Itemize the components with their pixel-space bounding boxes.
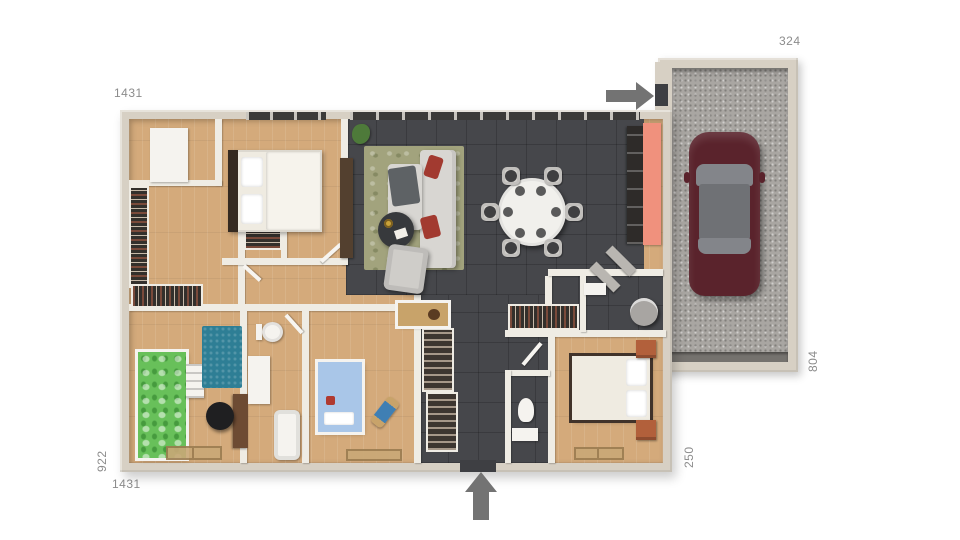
arrow-right-head: [636, 82, 654, 110]
arrow-up-icon: [465, 472, 497, 492]
kid-bed-green: [138, 352, 186, 458]
closet-rack: [131, 188, 147, 286]
floorplan-canvas: 1431 324 922 1431 250 804: [0, 0, 960, 540]
water-heater: [630, 298, 658, 326]
place-setting: [536, 186, 546, 196]
pillow: [241, 194, 263, 224]
dimension-garage-depth: 804: [806, 350, 820, 372]
wall: [505, 370, 550, 376]
pillow: [626, 390, 647, 417]
living-room-windows: [350, 112, 640, 120]
storage-cabinet: [150, 128, 188, 182]
floor-mat: [346, 449, 402, 461]
bedroom2-bed: [572, 356, 650, 420]
pillow: [324, 412, 354, 425]
sofa-blanket: [387, 165, 420, 207]
kid-bed-blue: [318, 362, 362, 432]
toilet: [262, 322, 283, 342]
wall: [505, 370, 511, 463]
dining-chair: [544, 239, 562, 257]
dining-chair: [565, 203, 583, 221]
place-setting: [503, 207, 513, 217]
car-roof: [699, 184, 750, 240]
floor-mat: [574, 447, 624, 460]
garage-door: [668, 352, 788, 362]
armchair: [383, 243, 429, 294]
arrow-right-icon: [606, 90, 636, 102]
dining-chair: [502, 239, 520, 257]
car-mirror-right: [759, 172, 765, 183]
dining-chair: [481, 203, 499, 221]
kitchen-accent-wall: [643, 123, 661, 245]
place-setting: [515, 228, 525, 238]
dining-chair: [544, 167, 562, 185]
wc-shelf: [512, 428, 538, 441]
nightstand: [636, 340, 656, 358]
arrow-up-shaft: [473, 492, 489, 520]
nightstand: [636, 420, 656, 440]
master-bed: [228, 150, 322, 232]
car: [689, 132, 760, 296]
wall: [222, 258, 348, 265]
pillow: [241, 157, 263, 187]
utility-shelf: [584, 283, 606, 295]
car-rear-window: [698, 238, 751, 254]
bed-toy: [326, 396, 335, 405]
main-entrance-arrow: [465, 472, 497, 520]
coffee-table: [378, 212, 414, 248]
place-setting: [536, 228, 546, 238]
dimension-bottom-width: 1431: [112, 477, 141, 491]
floor-mat: [166, 446, 222, 460]
teal-rug: [202, 326, 242, 388]
dimension-garage-width: 324: [779, 34, 801, 48]
main-entrance-doorway: [460, 460, 496, 472]
coffee-table-bowl: [384, 219, 393, 228]
side-entry-doorway: [655, 84, 668, 106]
wall: [215, 119, 222, 185]
terrarium-pet: [428, 309, 440, 320]
garage-entry-arrow: [606, 82, 654, 110]
terrarium: [398, 303, 448, 326]
master-bed-headboard: [228, 150, 238, 232]
place-setting: [551, 207, 561, 217]
dimension-entry-offset: 250: [682, 446, 696, 468]
duvet: [266, 152, 320, 230]
wall: [548, 336, 555, 463]
bathroom-vanity: [248, 356, 270, 404]
coffee-table-papers: [394, 227, 408, 239]
dimension-left-depth: 922: [95, 450, 109, 472]
bathtub: [274, 410, 300, 460]
shoe-rack: [428, 394, 456, 450]
tv-sideboard: [340, 158, 353, 258]
hall-closet-rack: [510, 306, 577, 328]
car-windshield: [696, 164, 753, 186]
toilet: [518, 398, 534, 422]
wall: [302, 311, 309, 463]
desk: [233, 394, 248, 448]
place-setting: [515, 186, 525, 196]
pillow: [626, 359, 647, 386]
closet-rack: [133, 286, 201, 306]
kitchen-appliance-column: [627, 126, 643, 244]
dining-chair: [502, 167, 520, 185]
shoe-rack: [424, 330, 452, 390]
dimension-top-width: 1431: [114, 86, 143, 100]
bedroom-window: [246, 112, 326, 120]
car-mirror-left: [684, 172, 690, 183]
